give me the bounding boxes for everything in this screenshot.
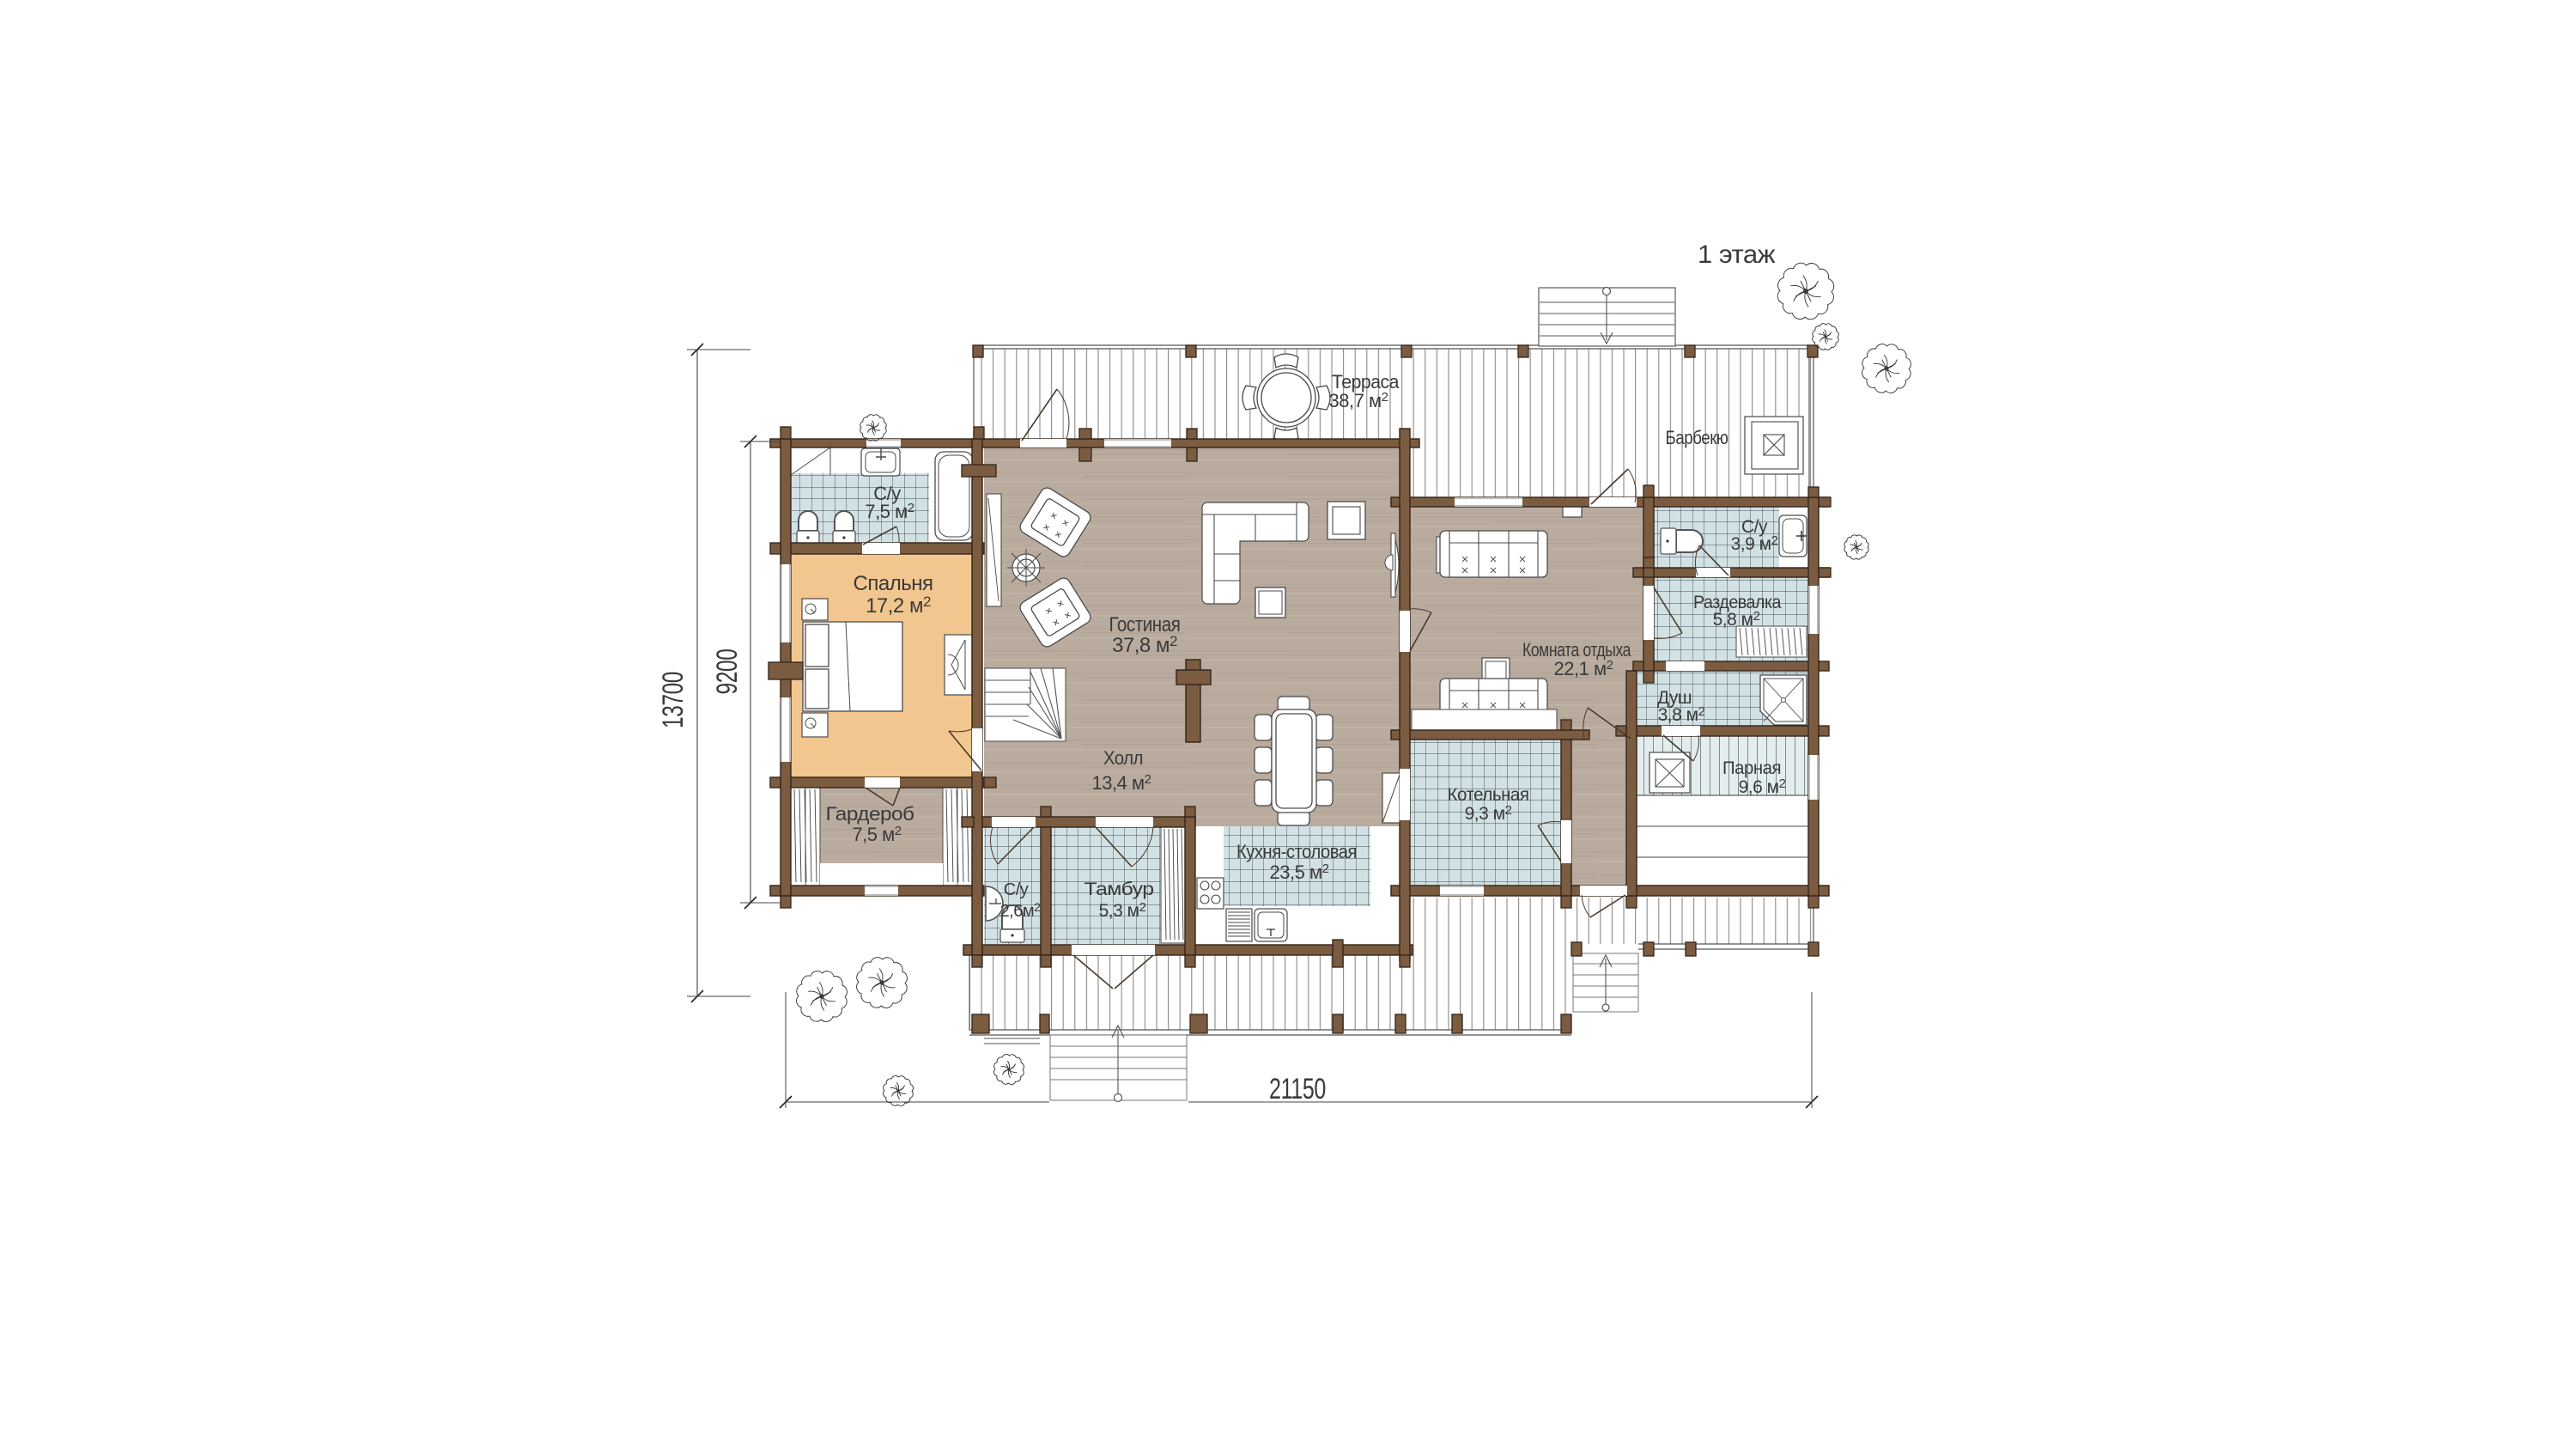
svg-text:7,5 м2: 7,5 м2 xyxy=(865,501,914,522)
svg-text:38,7 м2: 38,7 м2 xyxy=(1329,390,1388,411)
svg-text:22,1 м2: 22,1 м2 xyxy=(1554,658,1613,679)
svg-text:37,8 м2: 37,8 м2 xyxy=(1112,633,1177,657)
svg-text:С/у: С/у xyxy=(1004,880,1029,899)
svg-text:Котельная: Котельная xyxy=(1448,785,1529,805)
svg-text:7,5 м2: 7,5 м2 xyxy=(852,824,901,845)
svg-text:Кухня-столовая: Кухня-столовая xyxy=(1236,841,1357,862)
svg-text:5,3 м2: 5,3 м2 xyxy=(1099,900,1146,921)
svg-text:Барбекю: Барбекю xyxy=(1666,427,1728,448)
svg-text:1 этаж: 1 этаж xyxy=(1698,240,1775,269)
svg-text:Холл: Холл xyxy=(1103,747,1143,769)
svg-text:13,4 м2: 13,4 м2 xyxy=(1092,772,1151,794)
svg-text:13700: 13700 xyxy=(657,672,690,728)
svg-text:Парная: Парная xyxy=(1722,758,1781,778)
svg-text:3,9 м2: 3,9 м2 xyxy=(1731,533,1778,554)
svg-text:Спальня: Спальня xyxy=(854,572,933,595)
svg-text:5,8 м2: 5,8 м2 xyxy=(1713,609,1760,630)
svg-text:9,6 м2: 9,6 м2 xyxy=(1739,776,1786,797)
svg-text:3,8 м2: 3,8 м2 xyxy=(1658,704,1705,725)
svg-text:23,5 м2: 23,5 м2 xyxy=(1270,861,1329,883)
svg-text:Тамбур: Тамбур xyxy=(1084,880,1154,899)
svg-text:9200: 9200 xyxy=(711,649,744,695)
svg-text:9,3 м2: 9,3 м2 xyxy=(1465,803,1512,824)
svg-text:Гардероб: Гардероб xyxy=(826,803,914,825)
svg-text:17,2 м2: 17,2 м2 xyxy=(866,594,931,618)
svg-text:21150: 21150 xyxy=(1269,1073,1326,1105)
